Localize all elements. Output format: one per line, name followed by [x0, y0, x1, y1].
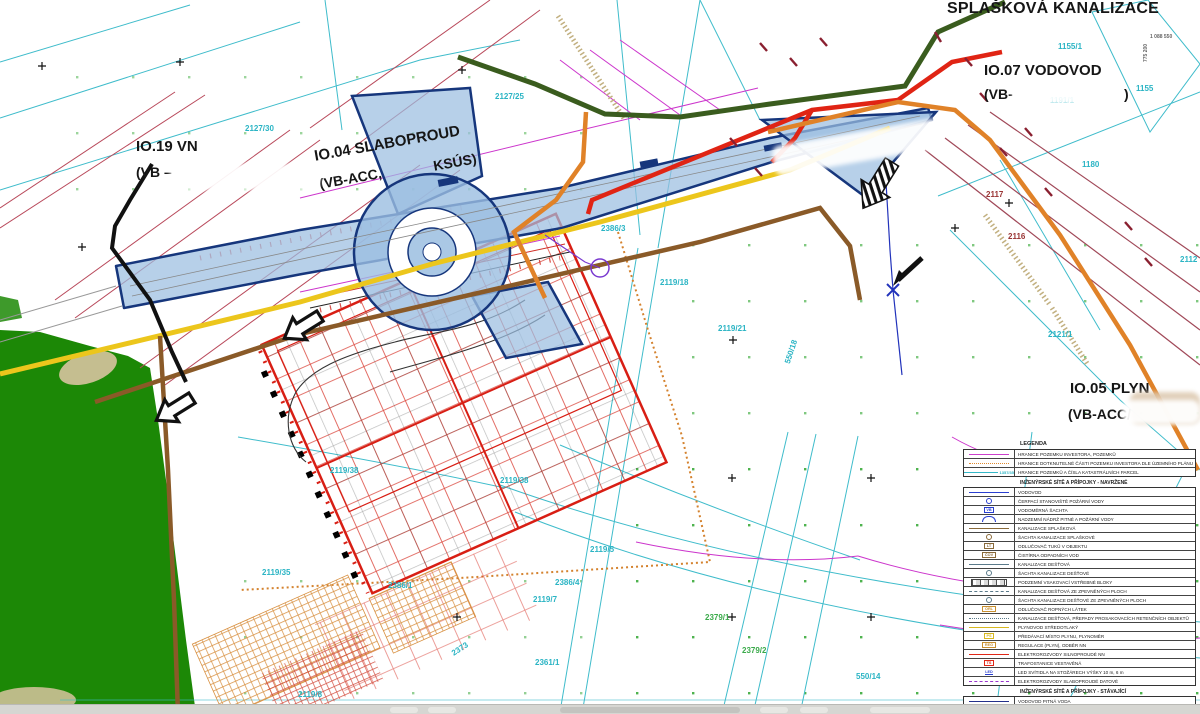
parcel-label: 2112 — [1180, 255, 1197, 264]
parcel-label: 2117 — [986, 190, 1003, 199]
label-io19-sub: (VB – — [136, 164, 172, 180]
coordinate-y-label: 1 088 550 — [1150, 34, 1172, 40]
legend-row: ČOVČISTÍRNA ODPADNÍCH VOD — [964, 551, 1195, 560]
toolbar-pill — [800, 707, 828, 713]
parcel-label: 2121/1 — [1048, 330, 1072, 339]
parcel-label: 550/14 — [856, 672, 880, 681]
site-plan-map[interactable]: 2127/302127/252119/182119/21550/182386/3… — [0, 0, 1200, 714]
parcel-label: 2386/4 — [555, 578, 579, 587]
legend-row: ELEKTROROZVODY SLABOPROUDÉ DATOVÉ — [964, 677, 1195, 685]
legend-row: ŠACHTA KANALIZACE SPLAŠKOVÉ — [964, 533, 1195, 542]
label-io07-sub-close: ) — [1124, 86, 1129, 102]
parcel-label: 2119/8 — [298, 690, 322, 699]
toolbar-pill — [560, 707, 740, 713]
redaction-blur — [1012, 82, 1120, 104]
legend-row: KANALIZACE DEŠŤOVÁ ZE ZPEVNĚNÝCH PLOCH — [964, 587, 1195, 596]
parcel-label: 2116 — [1008, 232, 1025, 241]
legend-row: NADZEMNÍ NÁDRŽ PITNÉ A POŽÁRNÍ VODY — [964, 515, 1195, 524]
legend-row: HRANICE DOTKNUTELNÉ ČÁSTI POZEMKU INVEST… — [964, 459, 1195, 468]
legend-row: ŠACHTA KANALIZACE DEŠŤOVÉ ZE ZPEVNĚNÝCH … — [964, 596, 1195, 605]
parcel-label: 2127/30 — [245, 124, 274, 133]
legend-row: PSPŘEDÁVACÍ MÍSTO PLYNU, PLYNOMĚR — [964, 632, 1195, 641]
legend-group-header: INŽENÝRSKÉ SÍTĚ A PŘÍPOJKY - NAVRŽENÉ — [963, 480, 1196, 486]
parcel-label: 2119/18 — [660, 278, 688, 287]
legend-row: LEDLED SVÍTIDLA NA STOŽÁRECH VÝŠKY 10 m,… — [964, 668, 1195, 677]
parcel-label: 2386/1 — [388, 581, 412, 590]
legend-group-header: INŽENÝRSKÉ SÍTĚ A PŘÍPOJKY - STÁVAJÍCÍ — [963, 689, 1196, 695]
legend: LEGENDA HRANICE POZEMKU INVESTORA, POZEM… — [963, 441, 1196, 714]
legend-row: ORLODLUČOVAČ ROPNÝCH LÁTEK — [964, 605, 1195, 614]
legend-title: LEGENDA — [963, 441, 1196, 447]
legend-row: KANALIZACE SPLAŠKOVÁ — [964, 524, 1195, 533]
parcel-label: 2119/38 — [330, 466, 358, 475]
legend-row: LTODLUČOVAČ TUKŮ V OBJEKTU — [964, 542, 1195, 551]
legend-row: ČERPACÍ STANOVIŠTĚ POŽÁRNÍ VODY — [964, 497, 1195, 506]
legend-row: KANALIZACE DEŠŤOVÁ — [964, 560, 1195, 569]
legend-row: PLYNOVOD STŘEDOTLAKÝ — [964, 623, 1195, 632]
legend-row: ELEKTROROZVODY SILNOPROUDÉ NN — [964, 650, 1195, 659]
toolbar-pill — [760, 707, 788, 713]
parcel-label: 2119/38 — [500, 476, 528, 485]
coordinate-x-label: 775 200 — [1143, 44, 1149, 62]
legend-row: REGREGULACE (PLYN), ODBĚR NN — [964, 641, 1195, 650]
parcel-label: 2379/1 — [705, 613, 729, 622]
parcel-label: 1155 — [1136, 84, 1153, 93]
legend-row: TSTRAFOSTANICE VESTAVĚNÁ — [964, 659, 1195, 668]
parcel-label: 2361/1 — [535, 658, 559, 667]
redaction-blur — [1122, 400, 1200, 424]
redaction-blur — [170, 164, 320, 190]
parcel-label: 2127/25 — [495, 92, 524, 101]
legend-row: KANALIZACE DEŠŤOVÁ, PŘEPADY PROSAKOVACÍC… — [964, 614, 1195, 623]
parcel-label: 2119/7 — [533, 595, 557, 604]
legend-row: ŠACHTA KANALIZACE DEŠŤOVÉ — [964, 569, 1195, 578]
label-splaskova-kanalizace: SPLAŠKOVÁ KANALIZACE — [947, 0, 1159, 18]
toolbar-pill — [390, 707, 418, 713]
legend-row: PODZEMNÍ VSAKOVACÍ VSTŘEBNÉ BLOKY — [964, 578, 1195, 587]
legend-row: HRANICE POZEMKU INVESTORA, POZEMKŮ — [964, 450, 1195, 459]
bottom-toolbar-sliver — [0, 704, 1200, 714]
parcel-label: 2379/2 — [742, 646, 766, 655]
parcel-label: 2119/5 — [590, 545, 614, 554]
legend-row: VODOVOD — [964, 488, 1195, 497]
toolbar-pill — [870, 707, 930, 713]
legend-groups: HRANICE POZEMKU INVESTORA, POZEMKŮHRANIC… — [963, 449, 1196, 714]
legend-row: 1357/35HRANICE POZEMKŮ A ČÍSLA KATASTRÁL… — [964, 468, 1195, 476]
label-io07-title: IO.07 VODOVOD — [984, 62, 1102, 79]
legend-row: VBVODOMĚRNÁ ŠACHTA — [964, 506, 1195, 515]
label-io19-title: IO.19 VN — [136, 138, 198, 155]
toolbar-pill — [428, 707, 456, 713]
green-field-area — [0, 330, 196, 714]
label-io07-sub-open: (VB- — [984, 86, 1013, 102]
parcel-label: 1180 — [1082, 160, 1099, 169]
parcel-label: 1155/1 — [1058, 42, 1082, 51]
parcel-label: 2119/21 — [718, 324, 746, 333]
parcel-label: 2386/3 — [601, 224, 625, 233]
parcel-label: 2119/35 — [262, 568, 290, 577]
